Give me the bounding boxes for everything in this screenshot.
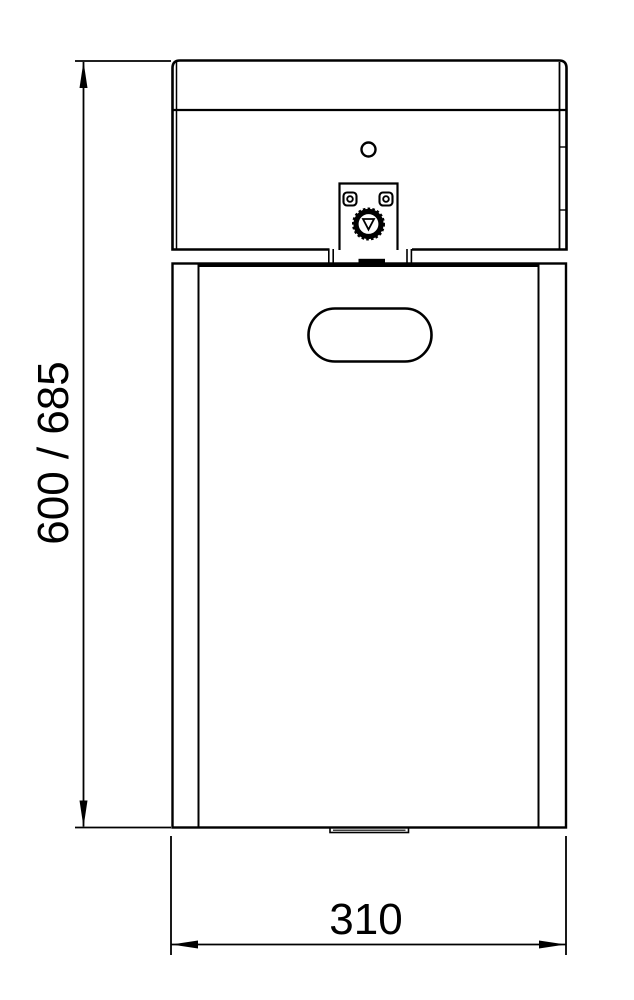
height-arrow-down xyxy=(80,801,88,828)
width-arrow-left xyxy=(172,941,199,949)
bin-front-elevation-drawing: 600 / 685 310 xyxy=(0,0,634,1000)
handle-slot xyxy=(309,309,432,362)
body-top-rim xyxy=(198,263,540,267)
height-dimension-label: 600 / 685 xyxy=(29,361,78,545)
lid-hole xyxy=(362,143,376,157)
technical-drawing-page: 600 / 685 310 xyxy=(0,0,634,1000)
height-arrow-up xyxy=(80,62,88,89)
bin-body xyxy=(173,263,567,833)
width-arrow-right xyxy=(539,941,566,949)
height-dimension: 600 / 685 xyxy=(29,61,171,828)
width-dimension-label: 310 xyxy=(329,895,402,944)
width-dimension: 310 xyxy=(171,836,566,955)
